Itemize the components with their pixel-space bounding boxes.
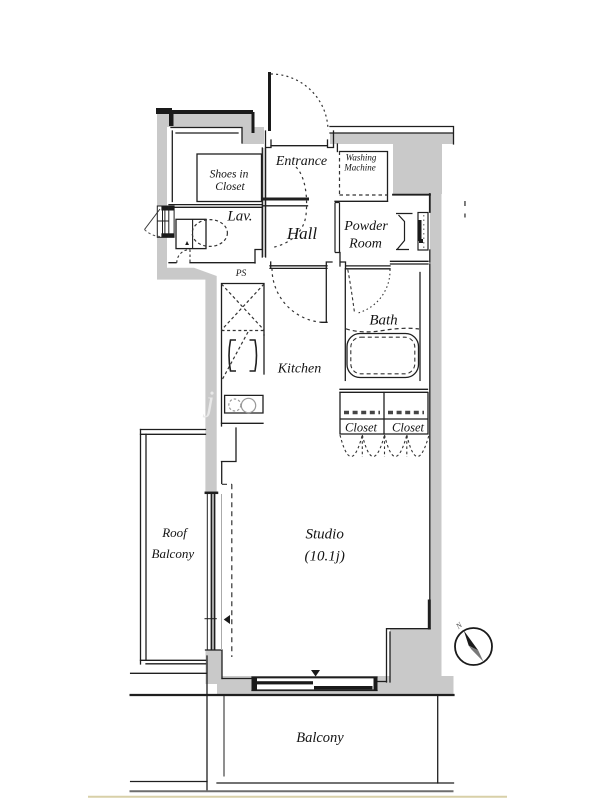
svg-text:Washing: Washing: [346, 153, 377, 163]
svg-text:Entrance: Entrance: [275, 154, 327, 169]
svg-text:Studio: Studio: [306, 527, 345, 543]
svg-text:Hall: Hall: [286, 224, 318, 243]
svg-text:Room: Room: [348, 237, 382, 252]
svg-text:Powder: Powder: [343, 219, 388, 234]
svg-text:Bath: Bath: [369, 313, 397, 329]
svg-text:Kitchen: Kitchen: [277, 362, 322, 377]
svg-text:Closet: Closet: [345, 421, 377, 435]
svg-text:Balcony: Balcony: [152, 546, 195, 561]
svg-text:Balcony: Balcony: [296, 730, 344, 746]
svg-text:Shoes in: Shoes in: [210, 169, 249, 181]
svg-text:Lav.: Lav.: [226, 209, 252, 225]
svg-text:PS: PS: [235, 269, 247, 279]
svg-text:Closet: Closet: [215, 181, 245, 193]
svg-text:(10.1j): (10.1j): [304, 549, 344, 565]
svg-text:Machine: Machine: [343, 163, 376, 173]
svg-text:Closet: Closet: [392, 421, 424, 435]
svg-text:Roof: Roof: [161, 525, 189, 540]
